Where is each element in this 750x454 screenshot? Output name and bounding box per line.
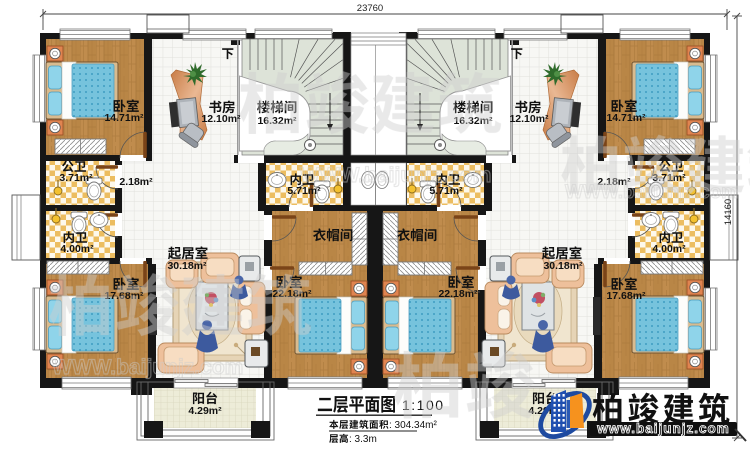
svg-text:30.18m²: 30.18m² [167,260,207,272]
svg-text:WWW.baijunjz.com: WWW.baijunjz.com [52,356,243,379]
svg-text:WWW.baijunjz.com: WWW.baijunjz.com [565,182,738,203]
svg-text:4.00m²: 4.00m² [60,243,94,255]
svg-text:14.71m²: 14.71m² [104,112,144,124]
svg-text:4.00m²: 4.00m² [652,243,686,255]
svg-text:3.71m²: 3.71m² [59,172,93,184]
svg-text:: 304.34m²: : 304.34m² [389,420,437,431]
svg-text:www.baijunjz.com: www.baijunjz.com [596,421,730,436]
svg-text:12.10m²: 12.10m² [201,113,241,125]
svg-text:30.18m²: 30.18m² [543,260,583,272]
svg-text:: 3.3m: : 3.3m [349,434,377,445]
svg-text:17.68m²: 17.68m² [606,290,646,302]
svg-text:14.71m²: 14.71m² [606,112,646,124]
svg-text:2.18m²: 2.18m² [119,176,153,188]
svg-text:22.18m²: 22.18m² [438,288,478,300]
svg-text:23760: 23760 [357,3,383,14]
svg-text:WWW.baijunjz.com: WWW.baijunjz.com [300,164,491,187]
svg-text:12.10m²: 12.10m² [509,113,549,125]
svg-text:4.29m²: 4.29m² [188,405,222,417]
